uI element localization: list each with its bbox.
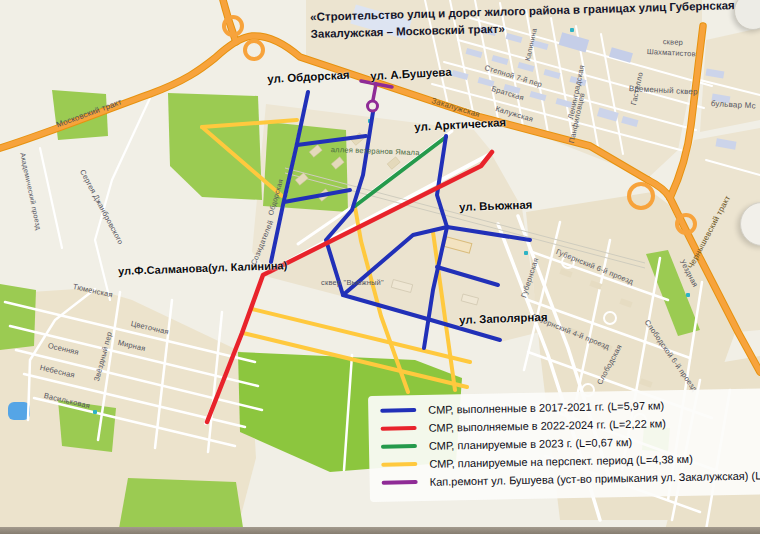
legend-item-perspective: СМР, планируемые на перспект. период (L=…	[381, 451, 760, 471]
legend-swatch-green	[381, 444, 417, 449]
legend-label: СМР, планируемые на перспект. период (L=…	[429, 453, 693, 470]
map-photo: Московский трактЗакалужскаяКалужскаяБрат…	[0, 0, 760, 534]
legend-label: Кап.ремонт ул. Бушуева (уст-во примыкани…	[430, 469, 760, 488]
legend-label: СМР, планируемые в 2023 г. (L=0,67 км)	[429, 436, 632, 452]
legend-swatch-yellow	[381, 462, 417, 467]
legend-label: СМР, выполняемые в 2022-2024 гг. (L=2,22…	[429, 417, 666, 434]
legend-item-capremont: Кап.ремонт ул. Бушуева (уст-во примыкани…	[382, 469, 760, 489]
legend-swatch-purple	[382, 480, 418, 485]
legend-swatch-blue	[380, 408, 416, 413]
pond	[8, 402, 30, 420]
table-edge	[0, 527, 760, 534]
legend-item-planned-2023: СМР, планируемые в 2023 г. (L=0,67 км)	[381, 433, 760, 453]
legend-item-current: СМР, выполняемые в 2022-2024 гг. (L=2,22…	[381, 415, 760, 435]
annotation-vyuzhnaya: ул. Вьюжная	[459, 198, 533, 213]
legend-item-completed: СМР, выполненные в 2017-2021 гг. (L=5,97…	[380, 397, 760, 417]
legend-label: СМР, выполненные в 2017-2021 гг. (L=5,97…	[428, 399, 664, 416]
legend-swatch-red	[381, 426, 417, 431]
legend: СМР, выполненные в 2017-2021 гг. (L=5,97…	[368, 388, 760, 502]
